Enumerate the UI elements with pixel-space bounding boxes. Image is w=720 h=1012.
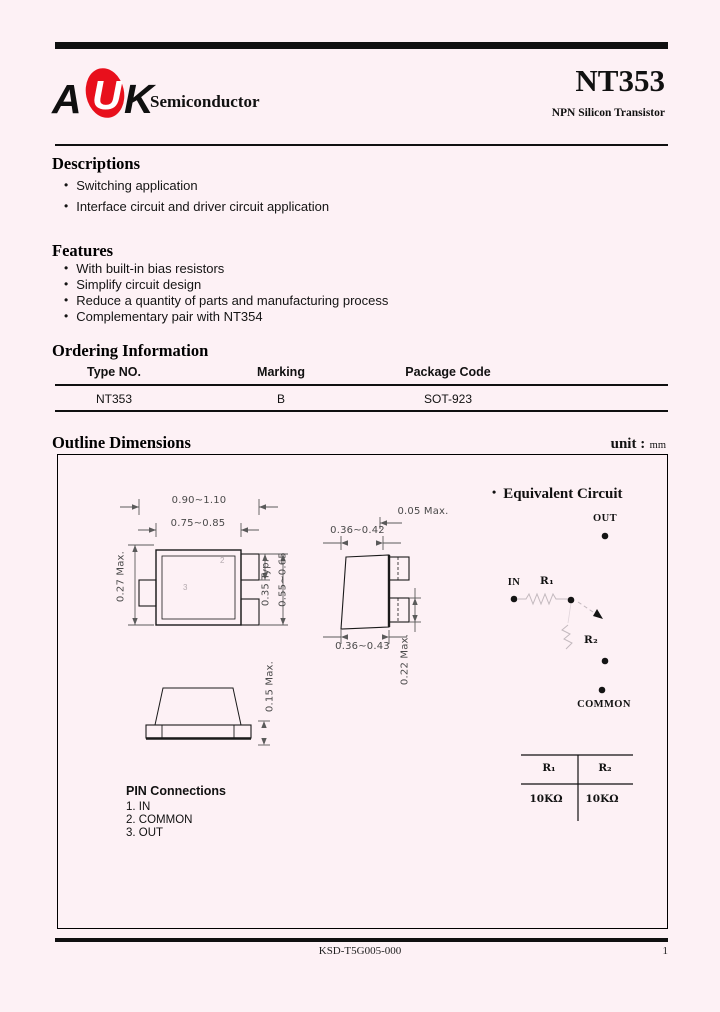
logo-letter-a: A [52, 79, 82, 120]
circuit-out-label: OUT [575, 513, 635, 524]
pin-connection-item: 3. OUT [126, 827, 163, 839]
dim-lead-span: 0.55~0.65 [278, 545, 289, 615]
equivalent-circuit-drawing [511, 533, 609, 694]
dim-body-width-inner: 0.75~0.85 [153, 518, 243, 529]
feature-item: With built-in bias resistors [64, 261, 224, 276]
pin-connections-title: PIN Connections [126, 784, 226, 798]
dim-side-width-top: 0.36~0.42 [315, 525, 400, 536]
package-side-view [323, 517, 421, 644]
part-number-title: NT353 [575, 63, 665, 99]
outline-dimensions-box: 0.90~1.10 0.75~0.85 0.27 Max. 0.35 Typ. … [57, 454, 668, 929]
pin-connection-item: 1. IN [126, 801, 150, 813]
dim-lead-thickness: 0.22 Max. [400, 628, 411, 692]
descriptions-title: Descriptions [52, 154, 140, 174]
footer-rule-bar [55, 938, 668, 942]
ordering-cell-type: NT353 [64, 392, 164, 406]
feature-item: Simplify circuit design [64, 277, 201, 292]
ordering-table-rule-bottom [55, 410, 668, 412]
top-rule-bar [55, 42, 668, 49]
ordering-header-marking: Marking [231, 365, 331, 379]
dim-lead-width: 0.35 Typ. [261, 551, 272, 615]
ordering-header-type: Type NO. [64, 365, 164, 379]
ordering-table-rule-top [55, 384, 668, 386]
resistor-table-val2: 10KΩ [572, 793, 632, 805]
ordering-title: Ordering Information [52, 341, 208, 361]
logo-letter-u: U [92, 75, 122, 116]
features-title: Features [52, 241, 113, 261]
description-item: Switching application [64, 178, 198, 193]
unit-label-group: unit : mm [611, 435, 666, 453]
pin-number-2: 2 [220, 556, 224, 565]
resistor-table-col2: R₂ [575, 762, 635, 774]
unit-label: unit : [611, 436, 646, 452]
ordering-header-package: Package Code [388, 365, 508, 379]
dim-lead-length: 0.27 Max. [116, 542, 127, 612]
feature-item: Reduce a quantity of parts and manufactu… [64, 293, 388, 308]
datasheet-page: A U K Semiconductor NT353 NPN Silicon Tr… [0, 0, 720, 1012]
circuit-r2-label: R₂ [571, 634, 611, 646]
description-item: Interface circuit and driver circuit app… [64, 199, 329, 214]
ordering-cell-package: SOT-923 [388, 392, 508, 406]
dim-height: 0.15 Max. [265, 652, 276, 722]
resistor-table-col1: R₁ [519, 762, 579, 774]
dim-side-width-bottom: 0.36~0.43 [320, 641, 405, 652]
circuit-common-label: COMMON [559, 699, 649, 710]
footer-page-number: 1 [663, 945, 669, 957]
unit-value: mm [650, 440, 666, 451]
pin-connection-item: 2. COMMON [126, 814, 192, 826]
ordering-cell-marking: B [231, 392, 331, 406]
circuit-r1-label: R₁ [527, 575, 567, 587]
footer-document-code: KSD-T5G005-000 [180, 945, 540, 957]
dim-standoff: 0.05 Max. [388, 506, 458, 517]
resistor-table-val1: 10KΩ [516, 793, 576, 805]
company-name: Semiconductor [150, 92, 260, 112]
feature-item: Complementary pair with NT354 [64, 309, 263, 324]
package-front-view [146, 688, 270, 745]
part-subtitle: NPN Silicon Transistor [552, 107, 665, 119]
outline-title: Outline Dimensions [52, 433, 191, 453]
pin-number-3: 3 [183, 583, 187, 592]
dim-body-width-outer: 0.90~1.10 [154, 495, 244, 506]
equivalent-circuit-title: Equivalent Circuit [492, 486, 623, 503]
header-rule [55, 144, 668, 146]
